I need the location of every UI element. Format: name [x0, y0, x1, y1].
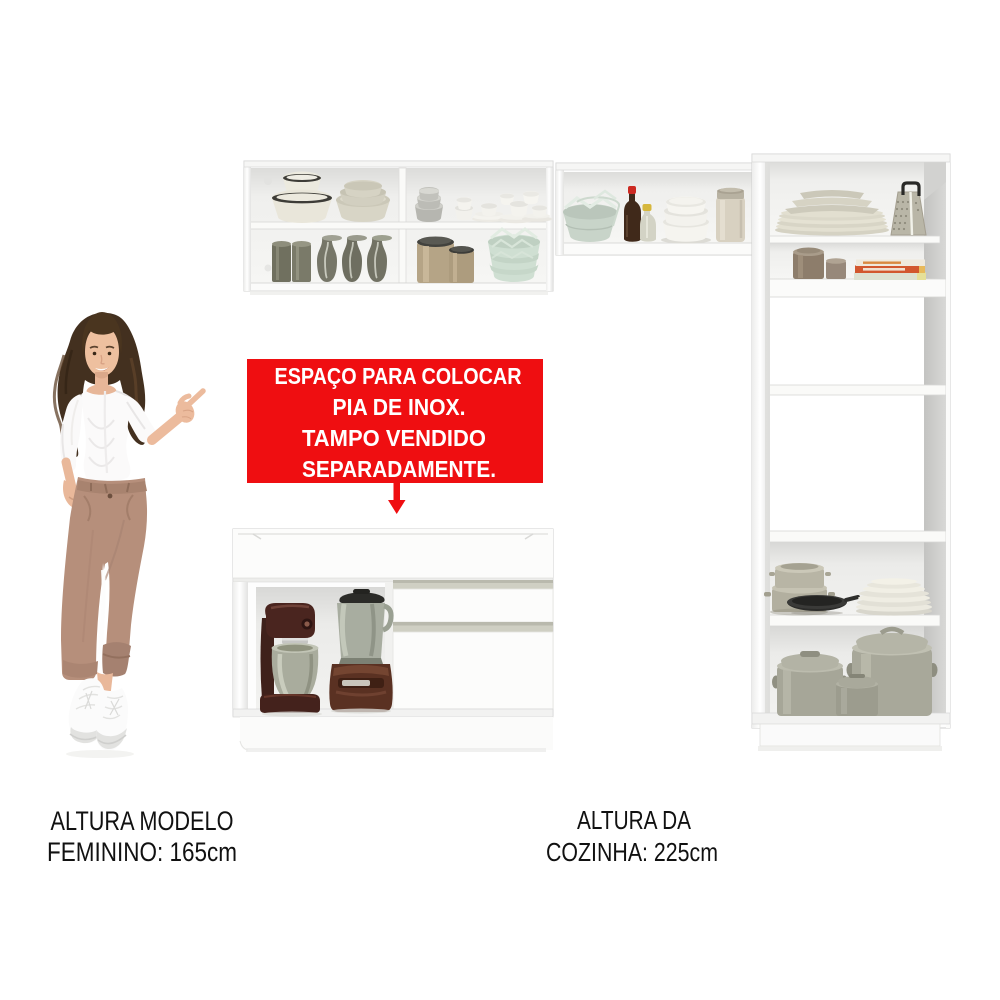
svg-text:SEPARADAMENTE.: SEPARADAMENTE. [302, 456, 496, 482]
svg-text:ESPAÇO PARA COLOCAR: ESPAÇO PARA COLOCAR [275, 363, 522, 389]
svg-text:FEMININO: 165cm: FEMININO: 165cm [47, 837, 237, 867]
svg-text:ALTURA MODELO: ALTURA MODELO [51, 806, 234, 836]
svg-text:PIA DE INOX.: PIA DE INOX. [333, 394, 466, 420]
svg-text:ALTURA DA: ALTURA DA [577, 805, 692, 835]
svg-text:COZINHA: 225cm: COZINHA: 225cm [546, 837, 718, 867]
svg-text:TAMPO VENDIDO: TAMPO VENDIDO [302, 425, 486, 451]
